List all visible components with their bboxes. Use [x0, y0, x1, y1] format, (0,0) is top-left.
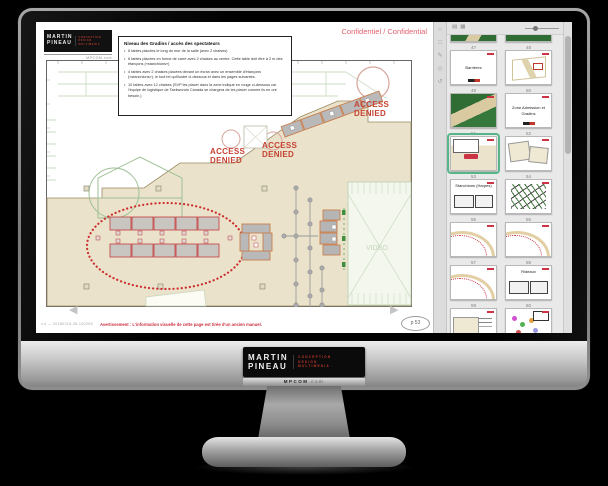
confidential-mark [487, 139, 494, 141]
access-denied-label: ACCESS [354, 100, 390, 109]
page-number-badge: p 53 [401, 316, 430, 331]
thumbnail-label: Barrières [451, 51, 496, 84]
brand-tagline: CONCEPTION DESIGN MULTIMEDIA [293, 355, 331, 369]
screen: Martin Pineau CONCEPTION DESIGN MULTIMED… [36, 22, 572, 333]
thumbnail-label: Stanchions (Harpes) [451, 180, 496, 213]
logo-tagline: CONCEPTION DESIGN MULTIMEDIA [75, 36, 101, 46]
slide-thumbnail[interactable] [505, 35, 552, 42]
notes-list: 6 tables placées le long du mur de la sa… [124, 49, 286, 99]
confidential-mark [542, 268, 549, 270]
confidential-mark [487, 96, 494, 98]
video-area-label: VIDEO [366, 245, 388, 252]
slide-thumbnail[interactable] [450, 222, 497, 257]
slide-thumbnail[interactable] [505, 179, 552, 214]
slide-thumbnail[interactable] [505, 308, 552, 333]
note-item: 4 tables avec 2 chaises placées devant u… [124, 70, 286, 81]
confidential-mark [487, 311, 494, 313]
rotate-icon[interactable]: ↺ [437, 79, 442, 85]
logo-name: Martin Pineau [47, 35, 72, 47]
note-item: 6 tables placées le long du mur de la sa… [124, 49, 286, 54]
magnifier-icon[interactable]: ○ [438, 27, 442, 33]
slide-thumbnail[interactable] [450, 35, 497, 42]
confidential-mark [542, 311, 549, 313]
access-denied-label: ACCESS [262, 141, 298, 150]
access-denied-label: DENIED [354, 109, 386, 118]
thumbnail-panel: ▤ ▦ 4748Barrières495051Zone Admission et… [447, 22, 564, 333]
confidential-mark [487, 53, 494, 55]
thumbnails-view-icon[interactable]: ▤ [452, 25, 457, 31]
thumbnail-list: 4748Barrières495051Zone Admission et Gra… [447, 35, 555, 333]
notes-box: Niveau des Gradins / accès des spectateu… [118, 36, 292, 116]
monitor-bezel: Martin Pineau CONCEPTION DESIGN MULTIMED… [21, 11, 587, 341]
slide-thumbnail[interactable]: Zone Admission et Gradins [505, 93, 552, 128]
slide-thumbnail[interactable]: Stanchions (Harpes) [450, 179, 497, 214]
slide-thumbnail[interactable] [505, 50, 552, 85]
next-page-button[interactable]: ▶ [390, 305, 398, 316]
document-area: Martin Pineau CONCEPTION DESIGN MULTIMED… [36, 22, 433, 333]
pencil-icon[interactable]: ✎ [437, 53, 442, 59]
confidential-mark [542, 96, 549, 98]
thumbnail-label: Rideaux [506, 266, 551, 299]
brand-name: Martin Pineau [248, 353, 288, 371]
confidential-mark [542, 182, 549, 184]
slide-thumbnail[interactable] [505, 222, 552, 257]
slide-thumbnail[interactable] [450, 265, 497, 300]
sidebar-scrollbar[interactable] [563, 22, 572, 333]
confidential-watermark: Confidentiel / Confidential [342, 27, 427, 36]
thumbnail-sidebar: ○ □ ✎ ◇ ↺ ▤ ▦ 4748Barrières495051Zone Ad… [433, 22, 572, 333]
note-item: 10 tables avec 12 chaises (SVP les place… [124, 83, 286, 99]
slide-thumbnail[interactable]: Rideaux [505, 265, 552, 300]
monitor-chin: Martin Pineau CONCEPTION DESIGN MULTIMED… [21, 341, 587, 387]
confidential-mark [542, 53, 549, 55]
monitor-stand-base [202, 437, 406, 467]
app-logo: Martin Pineau CONCEPTION DESIGN MULTIMED… [44, 30, 112, 60]
version-text: v.4 — 20180318-28-140208 [41, 322, 93, 326]
notes-title: Niveau des Gradins / accès des spectateu… [124, 41, 286, 46]
warning-text: Avertissement : L'information visuelle d… [100, 322, 262, 327]
access-denied-label: DENIED [262, 150, 294, 159]
slide-thumbnail[interactable] [450, 308, 497, 333]
slide-thumbnail[interactable] [450, 93, 497, 128]
note-item: 6 tables placées en forme de carré avec … [124, 57, 286, 68]
shape-icon[interactable]: ◇ [438, 66, 443, 72]
page-icon[interactable]: □ [438, 40, 442, 46]
confidential-mark [542, 139, 549, 141]
monitor: Martin Pineau CONCEPTION DESIGN MULTIMED… [18, 8, 590, 390]
slider-knob[interactable] [533, 26, 538, 31]
tool-strip: ○ □ ✎ ◇ ↺ [434, 22, 447, 333]
confidential-mark [542, 225, 549, 227]
monitor-stand-neck [258, 386, 350, 439]
thumbnail-label: Zone Admission et Gradins [506, 94, 551, 127]
scrollbar-thumb[interactable] [565, 36, 571, 154]
slide-thumbnail[interactable]: Barrières [450, 50, 497, 85]
access-denied-label: DENIED [210, 156, 242, 165]
thumbnail-size-slider[interactable] [525, 28, 559, 29]
access-denied-label: ACCESS [210, 147, 246, 156]
previous-page-button[interactable]: ◀ [69, 305, 77, 316]
brand-site: MPCOM.com [243, 378, 365, 386]
slide-thumbnail[interactable] [450, 136, 497, 171]
status-bar: v.4 — 20180318-28-140208 Avertissement :… [36, 319, 433, 333]
slide-thumbnail[interactable] [505, 136, 552, 171]
confidential-mark [487, 182, 494, 184]
panel-toolbar: ▤ ▦ [447, 22, 564, 35]
confidential-mark [487, 225, 494, 227]
thumbnail-grid: 4748Barrières495051Zone Admission et Gra… [447, 35, 555, 333]
confidential-mark [487, 268, 494, 270]
brand-plate: Martin Pineau CONCEPTION DESIGN MULTIMED… [243, 347, 365, 386]
grid-view-icon[interactable]: ▦ [460, 25, 465, 31]
